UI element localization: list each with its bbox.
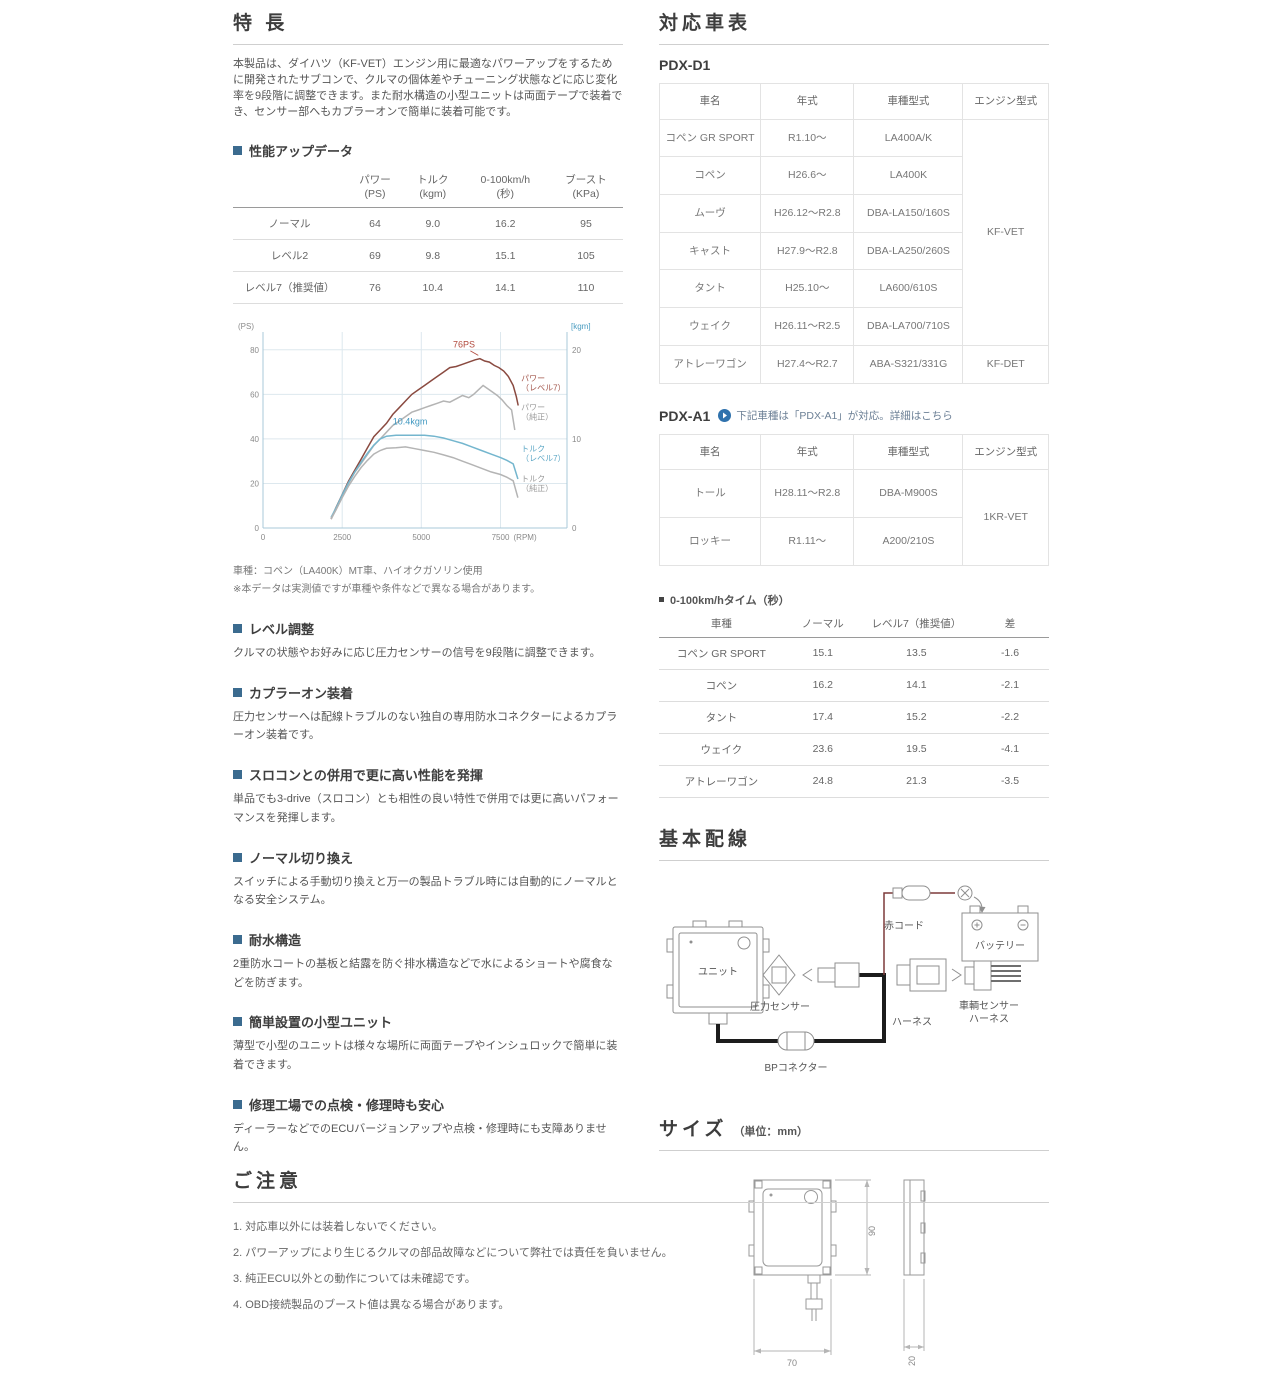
performance-chart: 020406080010200250050007500(RPM)(PS)[kgm… — [233, 318, 623, 557]
svg-text:トルク: トルク — [521, 475, 545, 484]
circle-arrow-icon — [718, 409, 731, 422]
perf-data-subheading: 性能アップデータ — [233, 141, 623, 160]
table-row: トール H28.11～R2.8 DBA-M900S 1KR-VET — [660, 470, 1049, 518]
table-row: タント17.415.2-2.2 — [659, 701, 1049, 733]
svg-text:60: 60 — [250, 390, 259, 399]
vehicle-harness-label-1: 車輌センサー — [959, 999, 1019, 1012]
section-heading: 簡単設置の小型ユニット — [233, 1012, 623, 1031]
chart-caption-line1: 車種：コペン（LA400K）MT車、ハイオクガソリン使用 — [233, 566, 483, 577]
svg-text:5000: 5000 — [412, 533, 430, 542]
cell: 110 — [549, 272, 623, 304]
cell: -4.1 — [971, 733, 1049, 765]
cell: 14.1 — [862, 669, 971, 701]
cell: -1.6 — [971, 637, 1049, 669]
cell: ウェイク — [660, 308, 761, 346]
cell: 15.1 — [784, 637, 862, 669]
section-body: スイッチによる手動切り換えと万一の製品トラブル時には自動的にノーマルとなる安全シ… — [233, 873, 623, 910]
cell: キャスト — [660, 232, 761, 270]
cell: 24.8 — [784, 765, 862, 797]
engine-cell: KF-DET — [963, 345, 1049, 383]
table-row: コペン GR SPORT R1.10～ LA400A/K KF-VET — [660, 119, 1049, 157]
cell: ABA-S321/331G — [854, 345, 963, 383]
cell: 10.4 — [404, 272, 462, 304]
pdx-a1-table: 車名 年式 車種型式 エンジン型式 トール H28.11～R2.8 DBA-M9… — [659, 434, 1049, 566]
cell: ムーヴ — [660, 195, 761, 233]
bullet-square-icon — [233, 688, 242, 697]
svg-text:20: 20 — [572, 346, 581, 355]
section-heading: 修理工場での点検・修理時も安心 — [233, 1095, 623, 1114]
cell: H26.12～R2.8 — [761, 195, 854, 233]
pdx-a1-heading-row: PDX-A1 下記車種は「PDX-A1」が対応。詳細はこちら — [659, 408, 1049, 424]
cell: 16.2 — [462, 208, 549, 240]
bullet-square-icon — [233, 1100, 242, 1109]
compat-heading: 対応車表 — [659, 8, 1049, 45]
red-cord-label: 赤コード — [884, 920, 924, 932]
chart-caption-line2: ※本データは実測値ですが車種や条件などで異なる場合があります。 — [233, 584, 540, 595]
cell: コペン GR SPORT — [660, 119, 761, 157]
svg-text:40: 40 — [250, 435, 259, 444]
svg-text:80: 80 — [250, 346, 259, 355]
fuse-holder-icon — [893, 886, 930, 900]
vehicle-harness-icon — [965, 961, 991, 990]
arrow-right-icon — [952, 969, 961, 981]
col-header: 車名 — [660, 84, 761, 120]
cell: 95 — [549, 208, 623, 240]
svg-text:0: 0 — [572, 524, 577, 533]
cell: 15.2 — [862, 701, 971, 733]
section-heading: ノーマル切り換え — [233, 848, 623, 867]
svg-text:（レベル7）: （レベル7） — [521, 384, 565, 393]
bullet-square-icon — [233, 1017, 242, 1026]
bullet-square-icon — [233, 770, 242, 779]
cell: 76 — [346, 272, 404, 304]
col-header: レベル7（推奨値） — [862, 614, 971, 638]
section-body: 薄型で小型のユニットは様々な場所に両面テープやインシュロックで簡単に装着できます… — [233, 1037, 623, 1074]
cell: タント — [659, 701, 784, 733]
table-row: アトレーワゴン H27.4～R2.7 ABA-S321/331G KF-DET — [660, 345, 1049, 383]
cell: コペン — [659, 669, 784, 701]
size-heading: サイズ（単位：mm） — [659, 1114, 1049, 1151]
cell: DBA-M900S — [854, 470, 963, 518]
table-header-row: 車名 年式 車種型式 エンジン型式 — [660, 434, 1049, 470]
pdx-a1-note-text[interactable]: 下記車種は「PDX-A1」が対応。詳細はこちら — [736, 408, 952, 423]
svg-text:[kgm]: [kgm] — [571, 322, 591, 331]
accel-table: 車種 ノーマル レベル7（推奨値） 差 コペン GR SPORT15.113.5… — [659, 614, 1049, 798]
col-header: エンジン型式 — [963, 84, 1049, 120]
table-row: レベル7（推奨値） 76 10.4 14.1 110 — [233, 272, 623, 304]
col-header: 車種型式 — [854, 84, 963, 120]
svg-text:0: 0 — [255, 524, 260, 533]
cell: 16.2 — [784, 669, 862, 701]
section-body: 2重防水コートの基板と結露を防ぐ排水構造などで水によるショートや腐食などを防ぎま… — [233, 955, 623, 992]
cell: 105 — [549, 240, 623, 272]
cell: R1.10～ — [761, 119, 854, 157]
pressure-sensor-label: 圧力センサー — [750, 1000, 810, 1013]
pdx-a1-note: 下記車種は「PDX-A1」が対応。詳細はこちら — [718, 408, 952, 423]
section-body: 単品でも3-drive（スロコン）とも相性の良い特性で併用では更に高いパフォーマ… — [233, 790, 623, 827]
table-header-row: 車種 ノーマル レベル7（推奨値） 差 — [659, 614, 1049, 638]
cell: R1.11～ — [761, 517, 854, 565]
bullet-square-icon — [233, 935, 242, 944]
cell: -2.2 — [971, 701, 1049, 733]
unit-label: ユニット — [698, 967, 738, 978]
cell: 15.1 — [462, 240, 549, 272]
svg-text:76PS: 76PS — [453, 340, 475, 350]
cell: H27.9～R2.8 — [761, 232, 854, 270]
row-label: ノーマル — [233, 208, 346, 240]
features-column: 特 長 本製品は、ダイハツ（KF-VET）エンジン用に最適なパワーアップをするた… — [233, 8, 623, 1157]
section-body: ディーラーなどでのECUバージョンアップや点検・修理時にも支障ありません。 — [233, 1120, 623, 1157]
notice-item: 4. OBD接続製品のブースト値は異なる場合があります。 — [233, 1293, 1049, 1319]
cell: H26.6～ — [761, 157, 854, 195]
bullet-square-icon — [233, 853, 242, 862]
cell: 19.5 — [862, 733, 971, 765]
cell: DBA-LA250/260S — [854, 232, 963, 270]
section-heading: スロコンとの併用で更に高い性能を発揮 — [233, 765, 623, 784]
ring-terminal-icon — [958, 886, 972, 900]
cell: コペン — [660, 157, 761, 195]
cell: 21.3 — [862, 765, 971, 797]
cell: LA600/610S — [854, 270, 963, 308]
harness-label: ハーネス — [892, 1016, 932, 1028]
cell: H26.11～R2.5 — [761, 308, 854, 346]
battery-icon — [962, 906, 1038, 961]
row-label: レベル7（推奨値） — [233, 272, 346, 304]
col-header: エンジン型式 — [963, 434, 1049, 470]
depth-dim-label: 20 — [907, 1356, 917, 1366]
sensor-connector-icon — [818, 963, 859, 987]
notice-item: 1. 対応車以外には装着しないでください。 — [233, 1215, 1049, 1241]
empty-header — [233, 170, 346, 208]
svg-text:(RPM): (RPM) — [514, 533, 537, 542]
table-row: アトレーワゴン24.821.3-3.5 — [659, 765, 1049, 797]
cell: -3.5 — [971, 765, 1049, 797]
svg-text:(PS): (PS) — [238, 322, 254, 331]
cell: 13.5 — [862, 637, 971, 669]
cell: 14.1 — [462, 272, 549, 304]
col-header: 差 — [971, 614, 1049, 638]
bullet-square-icon — [233, 146, 242, 155]
cell: アトレーワゴン — [660, 345, 761, 383]
cell: トール — [660, 470, 761, 518]
section-heading: カプラーオン装着 — [233, 683, 623, 702]
width-dim-label: 70 — [787, 1358, 797, 1368]
cell: A200/210S — [854, 517, 963, 565]
cell: LA400A/K — [854, 119, 963, 157]
col-header: 車名 — [660, 434, 761, 470]
battery-label: バッテリー — [975, 940, 1025, 952]
section-body: 圧力センサーへは配線トラブルのない独自の専用防水コネクターによるカプラーオン装着… — [233, 708, 623, 745]
pdx-d1-table: 車名 年式 車種型式 エンジン型式 コペン GR SPORT R1.10～ LA… — [659, 83, 1049, 384]
cell: 69 — [346, 240, 404, 272]
cell: H28.11～R2.8 — [761, 470, 854, 518]
cell: DBA-LA150/160S — [854, 195, 963, 233]
col-header: 車種 — [659, 614, 784, 638]
col-header-power: パワー(PS) — [346, 170, 404, 208]
svg-text:0: 0 — [261, 533, 266, 542]
svg-text:10.4kgm: 10.4kgm — [393, 416, 428, 426]
wiring-diagram: ユニット BPコネクター 圧力センサー — [659, 873, 1049, 1096]
table-row: ウェイク23.619.5-4.1 — [659, 733, 1049, 765]
cell: -2.1 — [971, 669, 1049, 701]
section-heading: 耐水構造 — [233, 930, 623, 949]
cell: ウェイク — [659, 733, 784, 765]
table-row: ノーマル 64 9.0 16.2 95 — [233, 208, 623, 240]
bp-connector-label: BPコネクター — [765, 1062, 828, 1074]
svg-text:パワー: パワー — [521, 374, 545, 383]
col-header: ノーマル — [784, 614, 862, 638]
cell: ロッキー — [660, 517, 761, 565]
cell: 9.0 — [404, 208, 462, 240]
col-header: 年式 — [761, 84, 854, 120]
cell: 64 — [346, 208, 404, 240]
svg-text:（レベル7）: （レベル7） — [521, 454, 565, 463]
cell: タント — [660, 270, 761, 308]
table-header-row: 車名 年式 車種型式 エンジン型式 — [660, 84, 1049, 120]
col-header-torque: トルク(kgm) — [404, 170, 462, 208]
table-header-row: パワー(PS) トルク(kgm) 0-100km/h(秒) ブースト(KPa) — [233, 170, 623, 208]
intro-paragraph: 本製品は、ダイハツ（KF-VET）エンジン用に最適なパワーアップをするために開発… — [233, 57, 623, 121]
bp-connector-icon — [778, 1032, 814, 1050]
perf-data-title: 性能アップデータ — [249, 141, 353, 160]
svg-text:（純正）: （純正） — [521, 412, 553, 422]
chart-caption: 車種：コペン（LA400K）MT車、ハイオクガソリン使用 ※本データは実測値です… — [233, 563, 623, 599]
cell: コペン GR SPORT — [659, 637, 784, 669]
notice-item: 2. パワーアップにより生じるクルマの部品故障などについて弊社では責任を負いませ… — [233, 1241, 1049, 1267]
arrow-left-icon — [803, 969, 812, 981]
pdx-a1-label: PDX-A1 — [659, 408, 710, 424]
table-row: コペン16.214.1-2.1 — [659, 669, 1049, 701]
harness-connector-icon — [897, 959, 946, 991]
performance-table: パワー(PS) トルク(kgm) 0-100km/h(秒) ブースト(KPa) … — [233, 170, 623, 304]
svg-text:パワー: パワー — [521, 403, 545, 412]
cell: H27.4～R2.7 — [761, 345, 854, 383]
svg-text:トルク: トルク — [521, 444, 545, 453]
notice-heading: ご注意 — [233, 1166, 1049, 1203]
row-label: レベル2 — [233, 240, 346, 272]
cell: 9.8 — [404, 240, 462, 272]
notice-items: 1. 対応車以外には装着しないでください。 2. パワーアップにより生じるクルマ… — [233, 1215, 1049, 1318]
svg-text:10: 10 — [572, 435, 581, 444]
svg-text:2500: 2500 — [333, 533, 351, 542]
size-unit: （単位：mm） — [733, 1126, 808, 1138]
cell: DBA-LA700/710S — [854, 308, 963, 346]
wiring-heading: 基本配線 — [659, 824, 1049, 861]
cell: アトレーワゴン — [659, 765, 784, 797]
table-row: レベル2 69 9.8 15.1 105 — [233, 240, 623, 272]
vehicle-harness-label-2: ハーネス — [969, 1013, 1009, 1025]
accel-table-title: 0-100km/hタイム（秒） — [659, 592, 1049, 608]
pdx-d1-label: PDX-D1 — [659, 57, 1049, 73]
svg-text:7500: 7500 — [492, 533, 510, 542]
cell: H25.10～ — [761, 270, 854, 308]
svg-text:20: 20 — [250, 480, 259, 489]
engine-cell: 1KR-VET — [963, 470, 1049, 565]
bullet-square-icon — [233, 624, 242, 633]
harness-pins-icon — [991, 966, 1021, 981]
cell: LA400K — [854, 157, 963, 195]
cell: 23.6 — [784, 733, 862, 765]
table-row: コペン GR SPORT15.113.5-1.6 — [659, 637, 1049, 669]
col-header-boost: ブースト(KPa) — [549, 170, 623, 208]
engine-cell: KF-VET — [963, 119, 1049, 345]
features-heading: 特 長 — [233, 8, 623, 45]
col-header: 年式 — [761, 434, 854, 470]
col-header: 車種型式 — [854, 434, 963, 470]
section-body: クルマの状態やお好みに応じ圧力センサーの信号を9段階に調整できます。 — [233, 644, 623, 663]
col-header-accel: 0-100km/h(秒) — [462, 170, 549, 208]
notice-section: ご注意 1. 対応車以外には装着しないでください。 2. パワーアップにより生じ… — [233, 1166, 1049, 1318]
cell: 17.4 — [784, 701, 862, 733]
pressure-sensor-icon — [763, 955, 795, 995]
svg-text:（純正）: （純正） — [521, 483, 553, 493]
bullet-mini-icon — [659, 597, 664, 602]
section-heading: レベル調整 — [233, 619, 623, 638]
